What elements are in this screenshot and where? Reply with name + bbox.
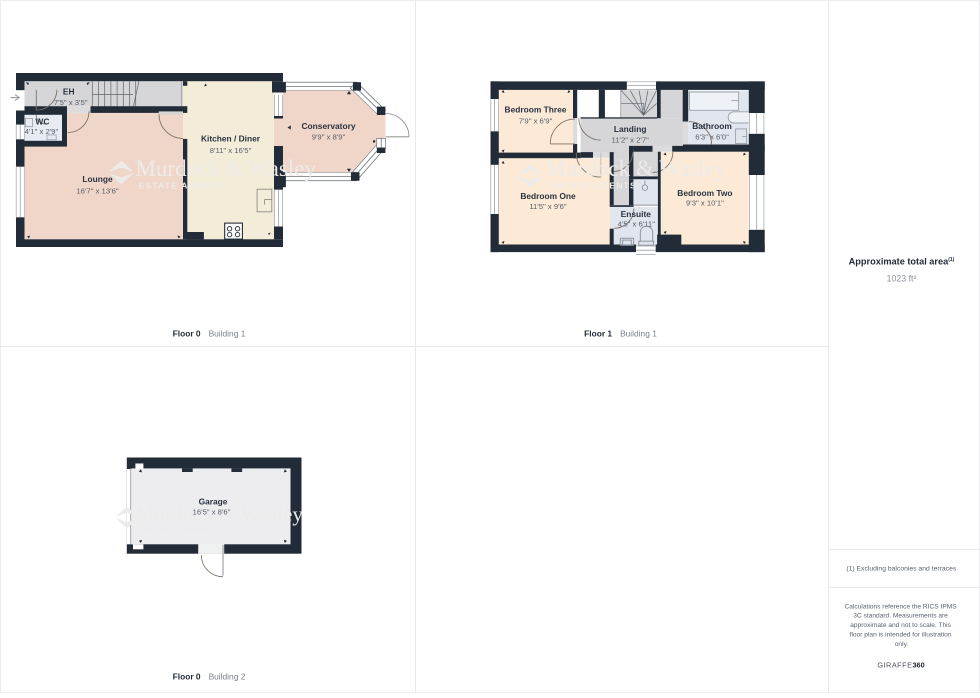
svg-text:Garage: Garage xyxy=(199,496,228,506)
svg-text:Floor 1Building 1: Floor 1Building 1 xyxy=(584,328,657,338)
svg-text:4'1" x 2'9": 4'1" x 2'9" xyxy=(25,127,59,136)
svg-text:ESTATE AGENTS: ESTATE AGENTS xyxy=(552,181,637,191)
svg-text:Conservatory: Conservatory xyxy=(302,121,356,131)
svg-text:Ensuite: Ensuite xyxy=(621,209,652,219)
svg-text:Bathroom: Bathroom xyxy=(692,121,732,131)
svg-text:Landing: Landing xyxy=(614,124,647,134)
svg-text:WC: WC xyxy=(35,117,49,127)
svg-text:Bedroom Two: Bedroom Two xyxy=(677,188,732,198)
svg-text:16'5" x 8'6": 16'5" x 8'6" xyxy=(193,508,231,517)
svg-text:(1) Excluding balconies and te: (1) Excluding balconies and terraces xyxy=(846,565,957,572)
svg-text:9'3" x 10'1": 9'3" x 10'1" xyxy=(686,199,724,208)
svg-text:GIRAFFE360: GIRAFFE360 xyxy=(877,660,924,669)
svg-text:Bedroom Three: Bedroom Three xyxy=(505,105,567,115)
svg-text:11'2" x 2'7": 11'2" x 2'7" xyxy=(612,136,650,145)
svg-text:ESTATE AGENTS: ESTATE AGENTS xyxy=(139,180,224,190)
svg-text:8'11" x 16'5": 8'11" x 16'5" xyxy=(210,146,252,155)
svg-text:6'3" x 6'0": 6'3" x 6'0" xyxy=(695,133,729,142)
svg-text:7'9" x 6'9": 7'9" x 6'9" xyxy=(519,117,553,126)
svg-text:Murdock & Wasley: Murdock & Wasley xyxy=(546,156,727,181)
svg-text:9'9" x 8'9": 9'9" x 8'9" xyxy=(312,133,346,142)
svg-text:ESTATE AGENTS: ESTATE AGENTS xyxy=(140,525,220,534)
svg-text:4'5" x 6'11": 4'5" x 6'11" xyxy=(618,220,656,229)
svg-text:Approximate total area(1): Approximate total area(1) xyxy=(849,257,955,267)
svg-text:Bedroom One: Bedroom One xyxy=(520,191,576,201)
svg-text:Kitchen / Diner: Kitchen / Diner xyxy=(201,134,261,144)
svg-text:11'5" x 9'6": 11'5" x 9'6" xyxy=(529,202,567,211)
svg-text:16'7" x 13'6": 16'7" x 13'6" xyxy=(76,186,118,195)
svg-text:1023 ft²: 1023 ft² xyxy=(887,273,917,283)
svg-text:Murdock & Wasley: Murdock & Wasley xyxy=(135,156,316,181)
svg-text:Floor 0Building 2: Floor 0Building 2 xyxy=(173,671,246,681)
svg-text:7'5" x 3'5": 7'5" x 3'5" xyxy=(54,98,88,107)
svg-text:EH: EH xyxy=(63,87,75,97)
svg-text:Floor 0Building 1: Floor 0Building 1 xyxy=(173,328,246,338)
svg-text:Lounge: Lounge xyxy=(82,174,113,184)
